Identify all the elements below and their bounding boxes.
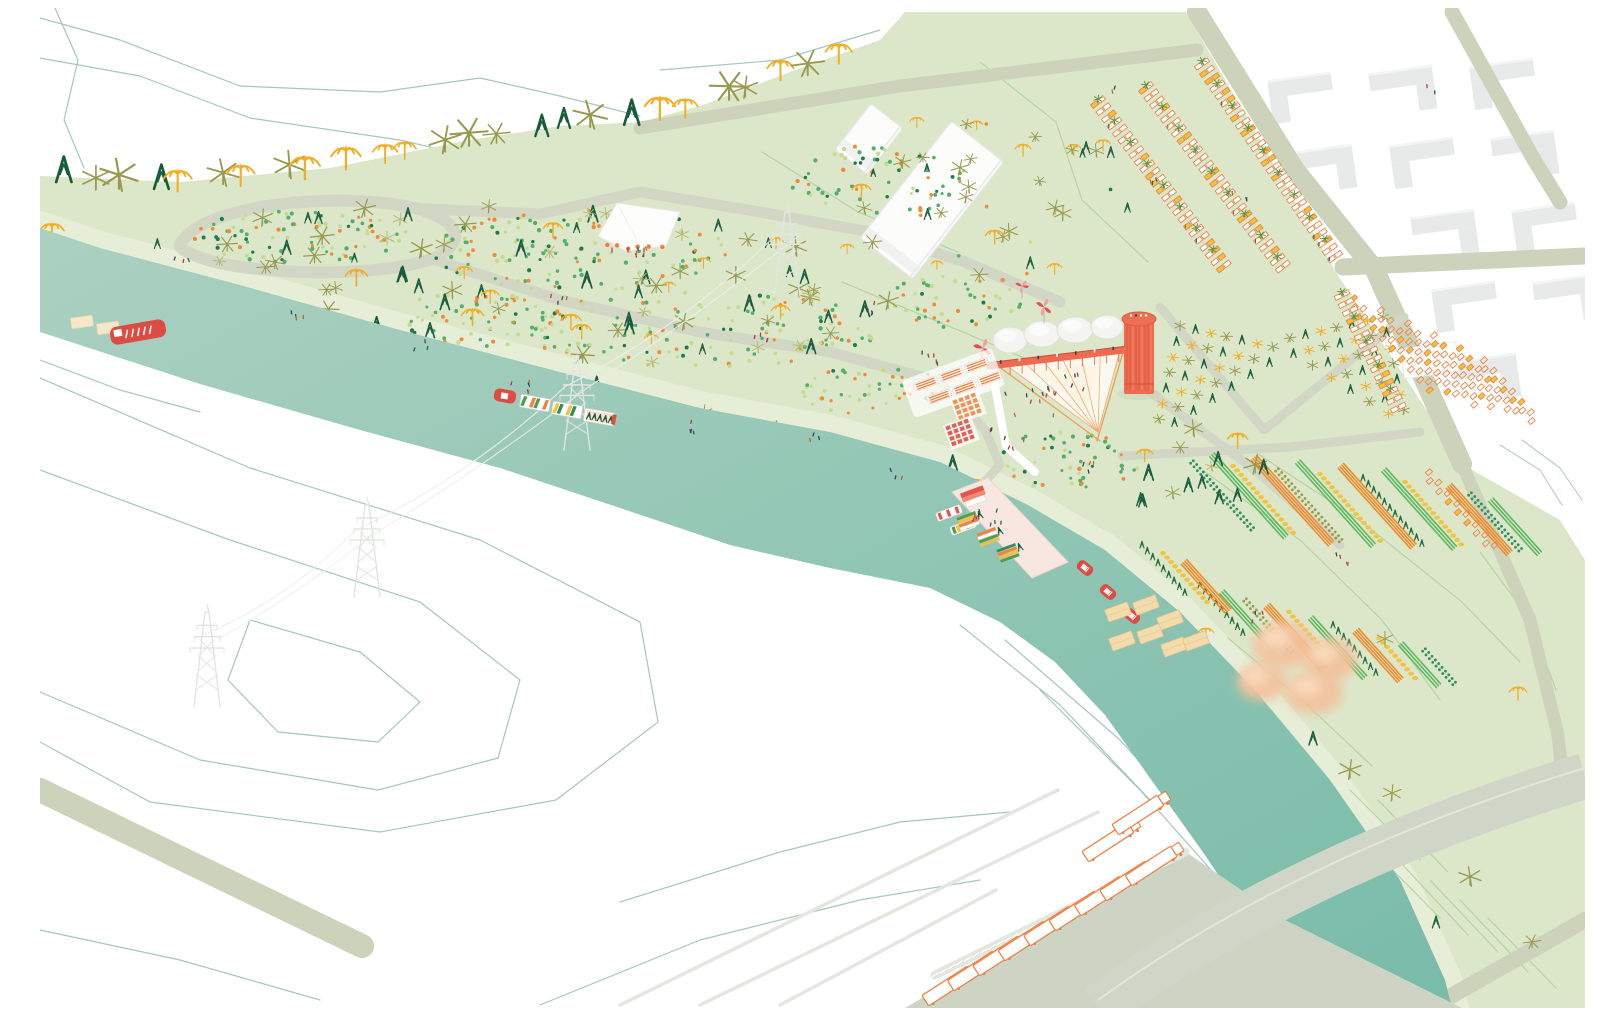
masterplan-illustration — [0, 0, 1600, 1035]
masterplan-canvas — [0, 0, 1600, 1035]
